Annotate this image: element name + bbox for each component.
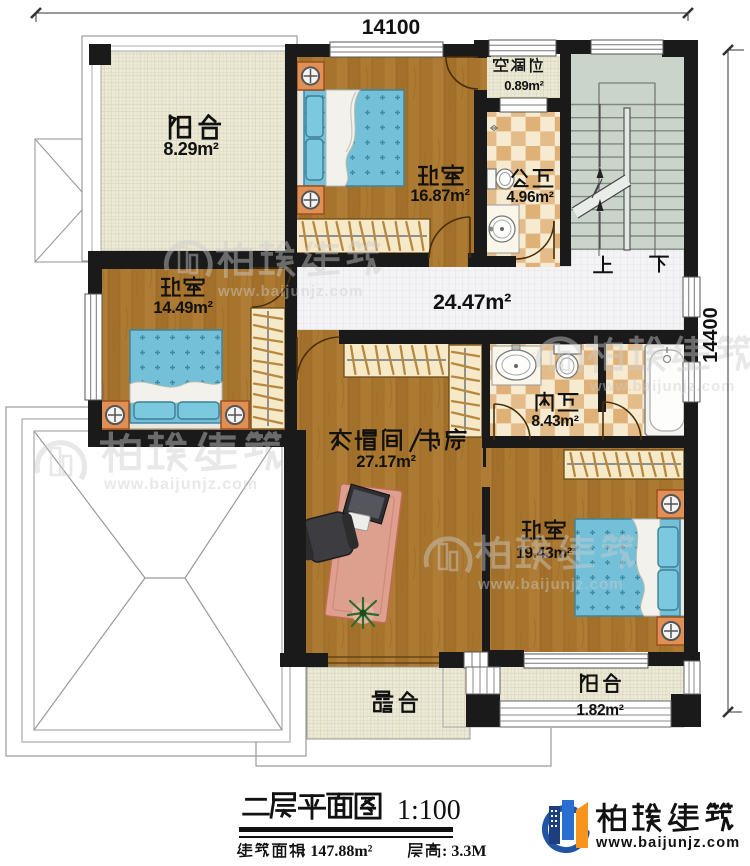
svg-text:1:100: 1:100: [397, 795, 461, 826]
svg-text:14.49m²: 14.49m²: [153, 299, 213, 317]
svg-text:16.87m²: 16.87m²: [410, 187, 470, 205]
svg-text:14100: 14100: [362, 16, 420, 39]
svg-text:www.baijunjz.com: www.baijunjz.com: [477, 576, 623, 593]
svg-text:8.43m²: 8.43m²: [531, 413, 578, 430]
svg-text:4.96m²: 4.96m²: [506, 189, 553, 206]
svg-text:24.47m²: 24.47m²: [433, 290, 511, 314]
svg-text:www.baijunjz.com: www.baijunjz.com: [217, 283, 363, 300]
svg-text:: 147.88m²: : 147.88m²: [301, 843, 373, 860]
svg-text:1.82m²: 1.82m²: [576, 702, 623, 719]
svg-text:www.baijunjz.com: www.baijunjz.com: [595, 835, 740, 851]
svg-text:www.baijunjz.com: www.baijunjz.com: [103, 476, 258, 493]
svg-text:www.baijunjz.com: www.baijunjz.com: [589, 378, 735, 395]
svg-text:8.29m²: 8.29m²: [163, 139, 219, 159]
svg-text:27.17m²: 27.17m²: [356, 453, 416, 471]
svg-text:0.89m²: 0.89m²: [504, 78, 544, 93]
svg-text:14400: 14400: [700, 307, 722, 363]
svg-text:: 3.3M: : 3.3M: [442, 843, 486, 860]
